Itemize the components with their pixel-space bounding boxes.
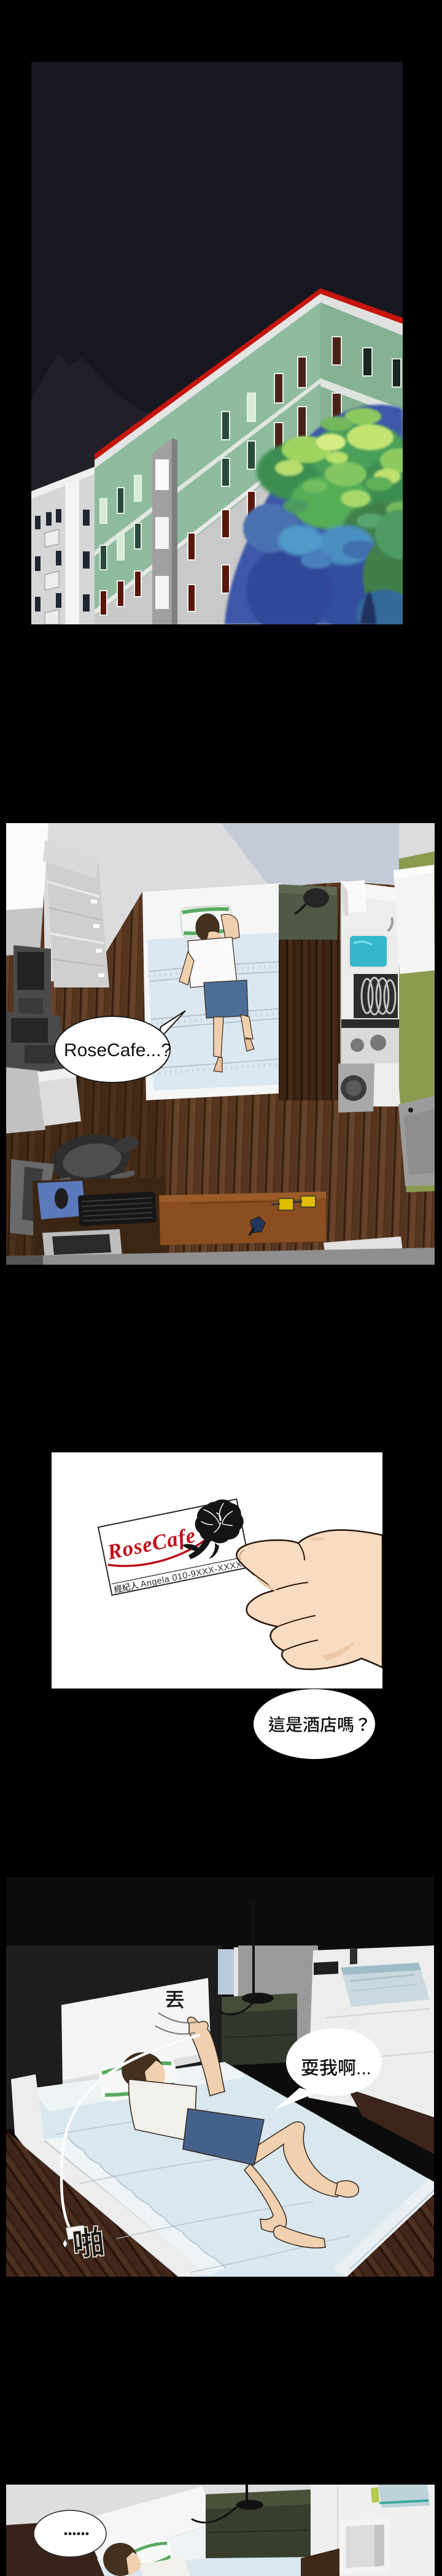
svg-text:RoseCafe...?: RoseCafe...? [64, 1040, 171, 1060]
svg-text:...: ... [356, 2058, 371, 2079]
